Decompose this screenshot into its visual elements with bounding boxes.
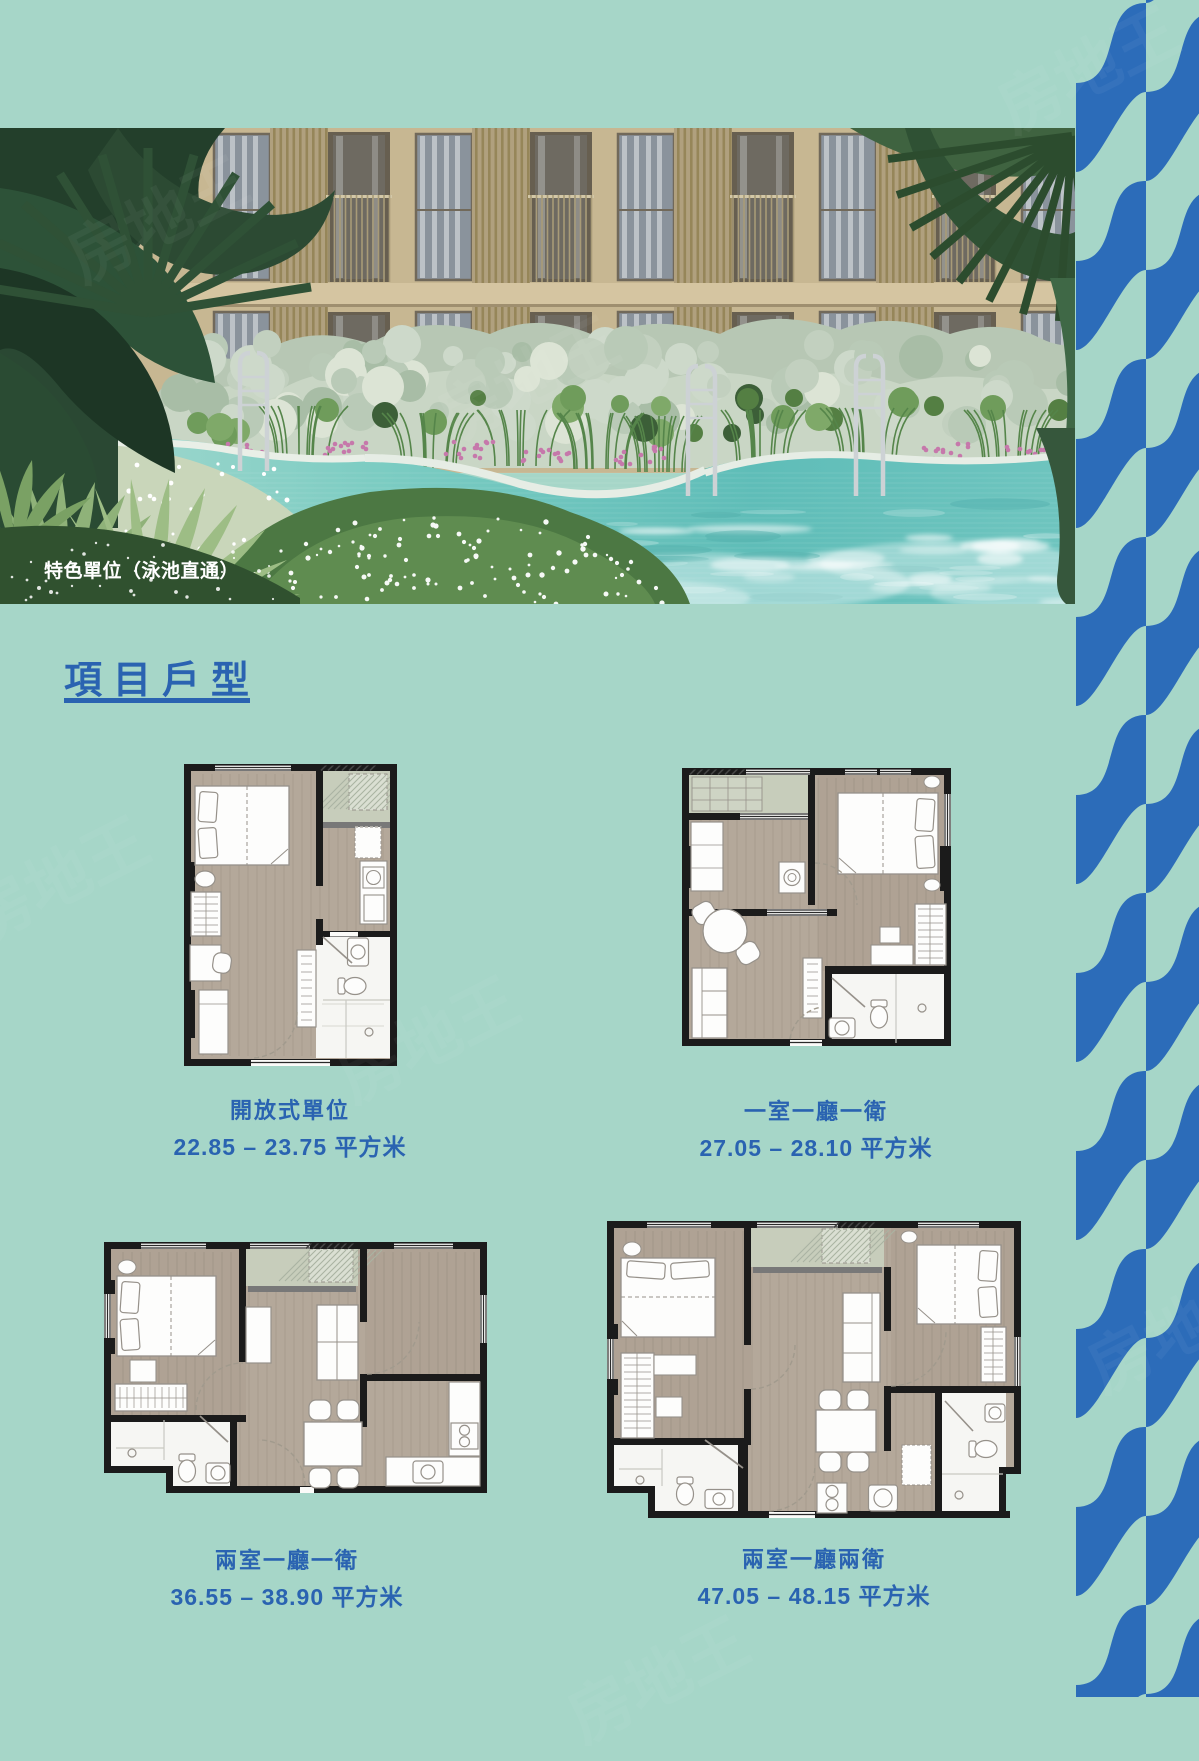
svg-text:特色單位（泳池直通）: 特色單位（泳池直通）: [44, 559, 239, 582]
